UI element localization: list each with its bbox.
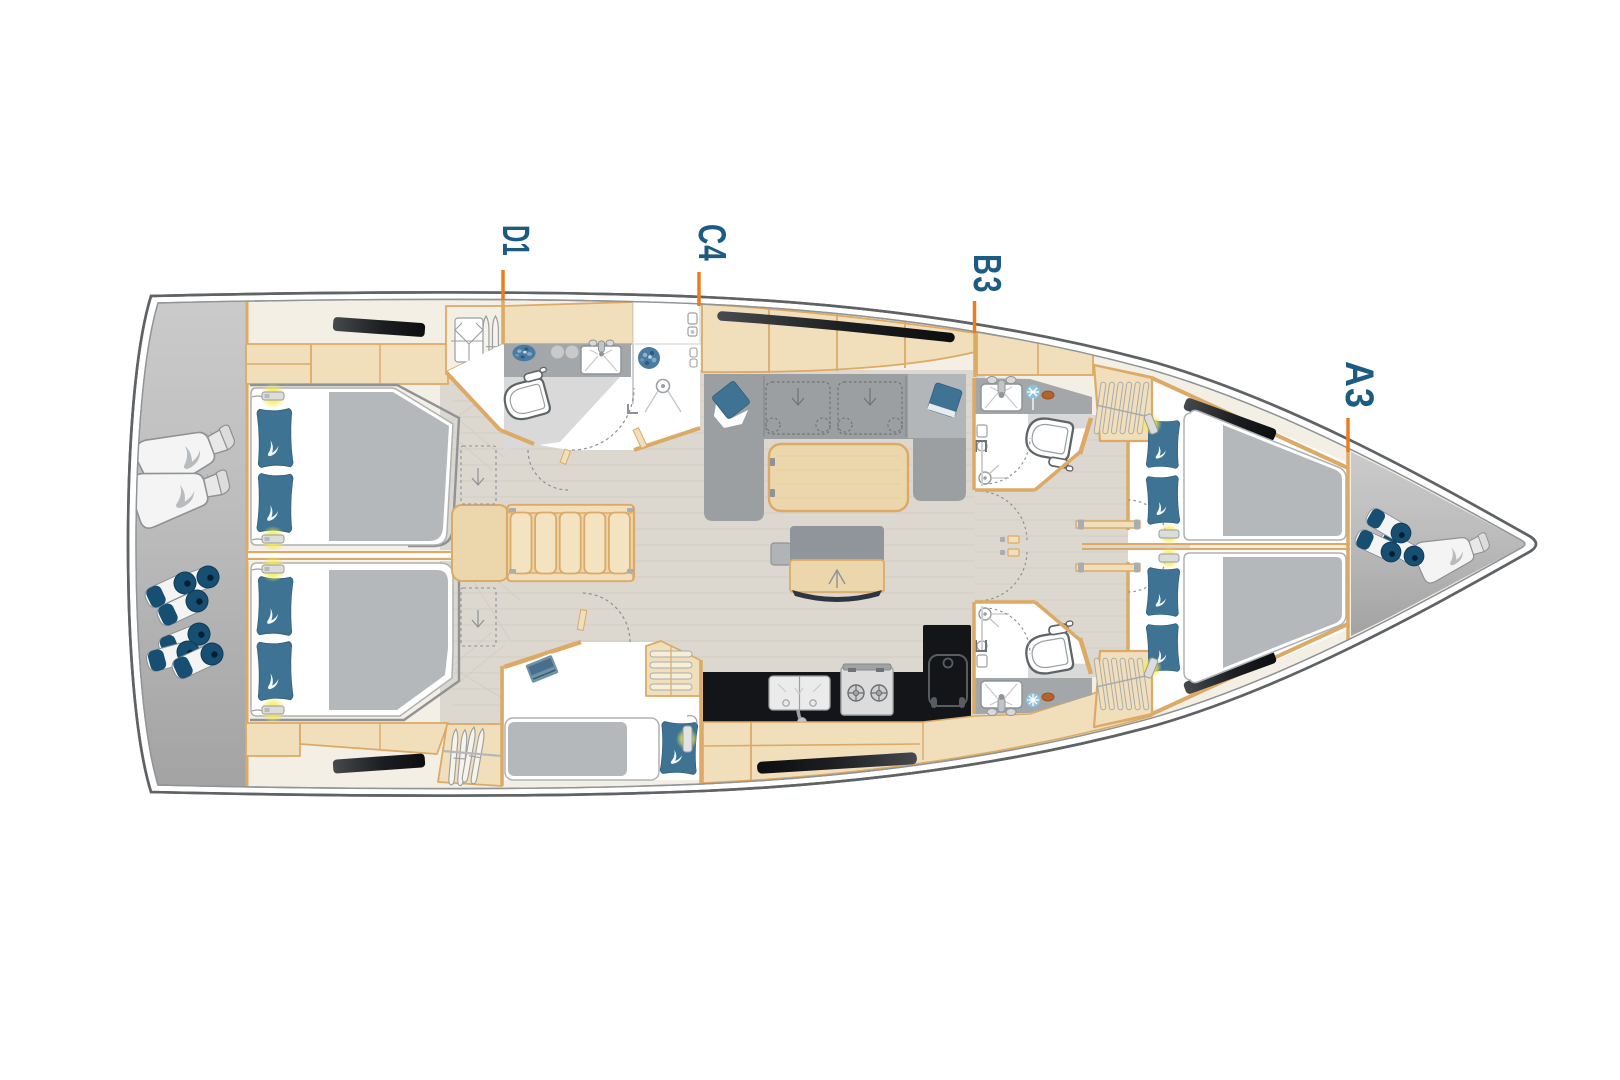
svg-text:B3: B3 xyxy=(965,254,1008,294)
svg-text:D1: D1 xyxy=(495,225,538,256)
svg-text:A3: A3 xyxy=(1337,361,1381,409)
svg-text:C4: C4 xyxy=(690,224,734,262)
